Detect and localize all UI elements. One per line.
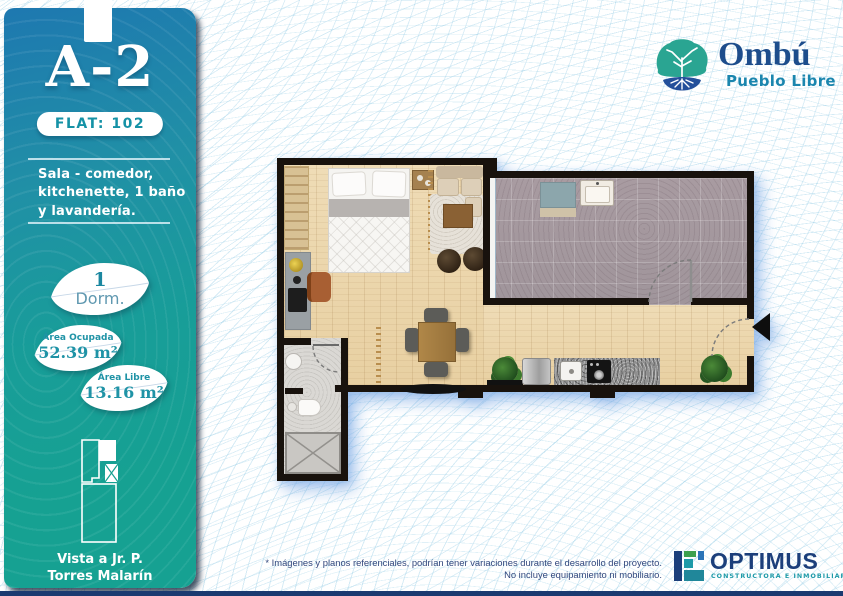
terrace-door-swing [649, 260, 691, 302]
mark-bar [674, 551, 682, 581]
view-line: Vista a Jr. P. [4, 552, 196, 569]
developer-name: OPTIMUS [710, 548, 818, 575]
street-view-label: Vista a Jr. P. Torres Malarín [4, 552, 196, 586]
divider [28, 158, 170, 160]
entry-arrow-icon [752, 313, 770, 341]
developer-tagline: CONSTRUCTORA E INMOBILIARIA [711, 573, 843, 580]
ombu-tree-icon [650, 36, 714, 96]
entry-door-swing [712, 319, 749, 356]
plan-symbols-overlay [277, 156, 777, 486]
free-area-value: 13.16 m² [84, 384, 164, 402]
disclaimer-line: * Imágenes y planos referenciales, podrí… [202, 557, 662, 569]
bathroom-door-swing [313, 346, 339, 372]
view-line: Torres Malarín [4, 569, 196, 586]
brand-district: Pueblo Libre [726, 72, 836, 90]
flat-number-badge: FLAT: 102 [37, 112, 163, 136]
description-line: kitchenette, 1 baño [38, 184, 186, 202]
disclaimer-line: No incluye equipamiento ni mobiliario. [202, 569, 662, 581]
description-line: Sala - comedor, [38, 166, 186, 184]
mark-square [698, 551, 704, 560]
unit-info-sidebar: A-2 FLAT: 102 Sala - comedor, kitchenett… [4, 8, 196, 588]
badge-free-area: Área Libre 13.16 m² [78, 362, 170, 414]
divider [28, 222, 170, 224]
unit-code: A-2 [4, 34, 196, 100]
bedrooms-count: 1 [93, 271, 106, 290]
tv [400, 384, 466, 394]
mark-bar [684, 551, 696, 557]
floorplan [277, 156, 777, 486]
optimus-mark-icon [674, 551, 704, 581]
occupied-area-value: 52.39 m² [38, 344, 118, 362]
building-locator-diagram [80, 438, 122, 546]
brand-name: Ombú [718, 36, 836, 74]
project-logo: Ombú Pueblo Libre [650, 36, 836, 96]
footer-bar [0, 591, 843, 596]
bedrooms-label: Dorm. [75, 290, 124, 308]
disclaimer: * Imágenes y planos referenciales, podrí… [202, 557, 662, 581]
mark-square [684, 559, 693, 568]
shower-cross-lines [287, 434, 339, 472]
description-line: y lavandería. [38, 203, 186, 221]
flyer-page: A-2 FLAT: 102 Sala - comedor, kitchenett… [0, 0, 843, 596]
mark-bar [684, 570, 704, 581]
badge-bedrooms: 1 Dorm. [48, 260, 152, 318]
unit-description: Sala - comedor, kitchenette, 1 baño y la… [38, 166, 186, 221]
